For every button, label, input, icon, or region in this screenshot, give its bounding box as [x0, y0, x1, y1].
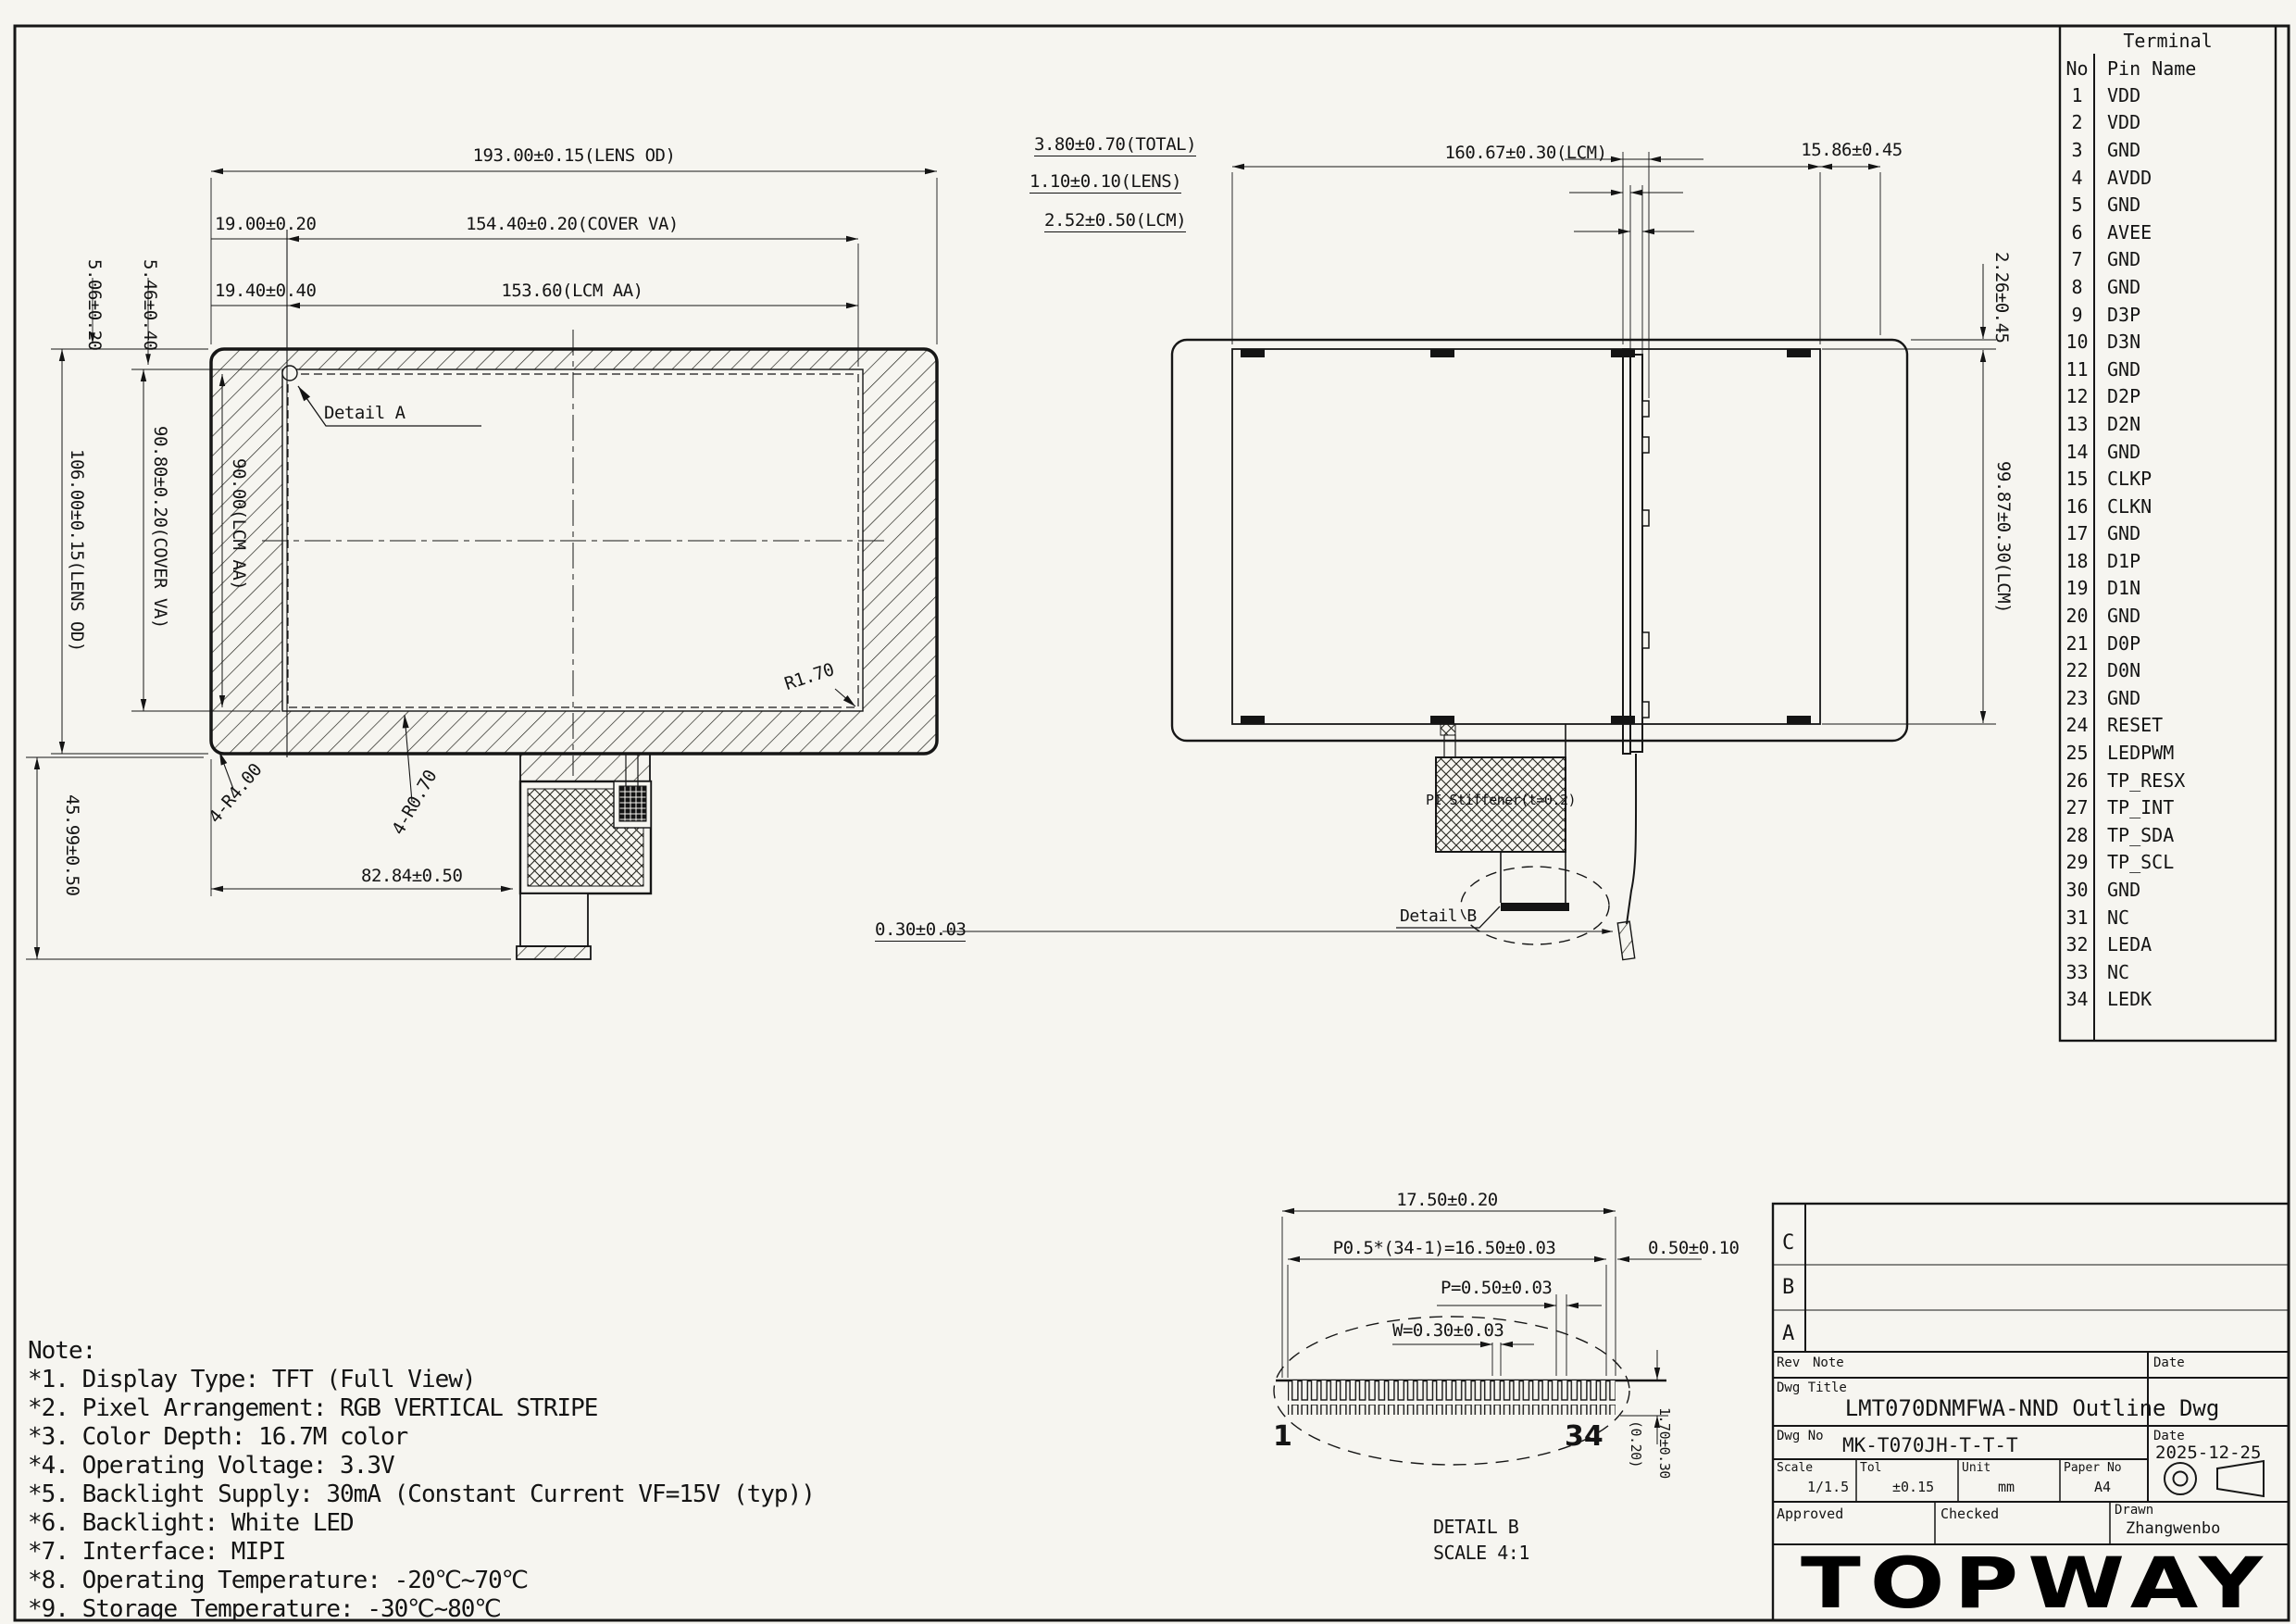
- rev-header: Rev: [1777, 1355, 1800, 1370]
- dim-tail-length: 45.99±0.50: [62, 794, 81, 895]
- dim-detail-pitch-total: P0.5*(34-1)=16.50±0.03: [1333, 1239, 1556, 1258]
- note-line: *3. Color Depth: 16.7M color: [28, 1423, 815, 1452]
- unit-label: Unit: [1962, 1461, 1990, 1475]
- tol-label: Tol: [1860, 1461, 1881, 1475]
- note-header: Note: [1813, 1355, 1844, 1370]
- pin-row: 3GND: [2060, 136, 2276, 164]
- pin-row: 23GND: [2060, 684, 2276, 712]
- note-line: *8. Operating Temperature: -20℃~70℃: [28, 1567, 815, 1595]
- pin-row: 12D2P: [2060, 383, 2276, 411]
- dim-offset-va: 19.00±0.20: [215, 215, 316, 234]
- pin-row: 18D1P: [2060, 547, 2276, 575]
- pin-row: 17GND: [2060, 520, 2276, 548]
- pin-row: 30GND: [2060, 876, 2276, 904]
- pin-table-col-name: Pin Name: [2094, 57, 2196, 81]
- pin-row: 29TP_SCL: [2060, 849, 2276, 877]
- note-line: *1. Display Type: TFT (Full View): [28, 1366, 815, 1394]
- rev-letter-a: A: [1782, 1322, 1794, 1345]
- pin-row: 14GND: [2060, 438, 2276, 466]
- detail-b-label: Detail B: [1400, 907, 1477, 926]
- topway-logo: TOPWAY: [1801, 1548, 2272, 1618]
- approved-label: Approved: [1777, 1505, 1843, 1522]
- pin-34-marker: 34: [1565, 1421, 1603, 1452]
- unit-value: mm: [1998, 1479, 2015, 1495]
- dim-cover-va-width: 154.40±0.20(COVER VA): [466, 215, 679, 234]
- notes-title: Note:: [28, 1337, 815, 1366]
- checked-label: Checked: [1940, 1505, 1999, 1522]
- scale-label: Scale: [1777, 1461, 1813, 1475]
- pin-row: 19D1N: [2060, 575, 2276, 603]
- dim-offset-aa: 19.40±0.40: [215, 281, 316, 301]
- dim-lens-od-width: 193.00±0.15(LENS OD): [473, 146, 676, 166]
- dim-lcm-aa-width: 153.60(LCM AA): [501, 281, 643, 301]
- detail-b-scale: SCALE 4:1: [1433, 1543, 1529, 1563]
- dwg-no-label: Dwg No: [1777, 1429, 1824, 1443]
- dim-detail-pin-width: W=0.30±0.03: [1392, 1321, 1504, 1341]
- detail-b-title: DETAIL B: [1433, 1517, 1518, 1537]
- note-line: *4. Operating Voltage: 3.3V: [28, 1452, 815, 1480]
- dim-detail-pin-length: 1.70±0.30: [1657, 1407, 1673, 1479]
- pin-table-header: No Pin Name: [2060, 57, 2276, 81]
- note-line: *9. Storage Temperature: -30℃~80℃: [28, 1595, 815, 1624]
- notes-section: Note: *1. Display Type: TFT (Full View)*…: [28, 1337, 815, 1624]
- paper-value: A4: [2094, 1479, 2111, 1495]
- rev-letter-b: B: [1782, 1276, 1794, 1299]
- date-header: Date: [2153, 1355, 2185, 1370]
- dim-fpc-thickness: 0.30±0.03: [875, 920, 966, 942]
- drawing-sheet: 193.00±0.15(LENS OD) 154.40±0.20(COVER V…: [0, 0, 2296, 1624]
- pin-table-title: Terminal: [2060, 26, 2276, 57]
- pin-row: 33NC: [2060, 958, 2276, 986]
- dwg-no-value: MK-T070JH-T-T-T: [1842, 1434, 2018, 1456]
- dim-total-thickness: 3.80±0.70(TOTAL): [1034, 135, 1196, 156]
- note-line: *7. Interface: MIPI: [28, 1538, 815, 1567]
- rev-letter-c: C: [1782, 1231, 1794, 1255]
- pin-row: 20GND: [2060, 602, 2276, 630]
- pin-row: 6AVEE: [2060, 219, 2276, 246]
- dim-fpc-width: 82.84±0.50: [361, 867, 462, 886]
- pin-row: 7GND: [2060, 246, 2276, 274]
- pin-row: 26TP_RESX: [2060, 767, 2276, 794]
- dwg-title-value: LMT070DNMFWA-NND Outline Dwg: [1845, 1395, 2220, 1421]
- pin-row: 4AVDD: [2060, 164, 2276, 192]
- note-line: *2. Pixel Arrangement: RGB VERTICAL STRI…: [28, 1394, 815, 1423]
- drawn-label: Drawn: [2115, 1503, 2153, 1518]
- pin-row: 25LEDPWM: [2060, 739, 2276, 767]
- pin-1-marker: 1: [1273, 1421, 1292, 1452]
- dim-lcm-width: 160.67±0.30(LCM): [1444, 144, 1606, 163]
- pin-row: 1VDD: [2060, 81, 2276, 109]
- pin-row: 34LEDK: [2060, 986, 2276, 1014]
- dim-detail-depth: (0.20): [1628, 1420, 1644, 1468]
- pin-row: 2VDD: [2060, 109, 2276, 137]
- pin-row: 10D3N: [2060, 328, 2276, 356]
- date-value: 2025-12-25: [2155, 1443, 2261, 1463]
- drawn-value: Zhangwenbo: [2126, 1519, 2220, 1538]
- dim-lcm-thickness: 2.52±0.50(LCM): [1044, 211, 1186, 232]
- dim-cover-va-height: 90.80±0.20(COVER VA): [150, 426, 169, 629]
- pin-table: Terminal No Pin Name 1VDD2VDD3GND4AVDD5G…: [2060, 26, 2276, 1041]
- pin-row: 8GND: [2060, 273, 2276, 301]
- dim-top-gap: 2.26±0.45: [1991, 252, 2011, 343]
- dim-margin-aa: 5.46±0.40: [140, 259, 159, 350]
- dim-detail-end-margin: 0.50±0.10: [1648, 1239, 1739, 1258]
- pin-row: 5GND: [2060, 191, 2276, 219]
- pin-row: 28TP_SDA: [2060, 821, 2276, 849]
- stiffener-label: PI Stiffener(t=0.2): [1426, 793, 1576, 808]
- pin-row: 31NC: [2060, 904, 2276, 931]
- dim-lens-thickness: 1.10±0.10(LENS): [1029, 172, 1181, 194]
- pin-row: 13D2N: [2060, 410, 2276, 438]
- dim-lcm-aa-height: 90.00(LCM AA): [229, 458, 248, 590]
- dim-fpc-offset: 15.86±0.45: [1801, 141, 1902, 160]
- pin-row: 24RESET: [2060, 712, 2276, 740]
- dim-lens-od-height: 106.00±0.15(LENS OD): [67, 449, 86, 652]
- tol-value: ±0.15: [1892, 1479, 1934, 1495]
- pin-row: 15CLKP: [2060, 465, 2276, 493]
- scale-value: 1/1.5: [1807, 1479, 1849, 1495]
- pin-row: 9D3P: [2060, 301, 2276, 329]
- notes-list: *1. Display Type: TFT (Full View)*2. Pix…: [28, 1366, 815, 1624]
- note-line: *5. Backlight Supply: 30mA (Constant Cur…: [28, 1480, 815, 1509]
- pin-table-col-no: No: [2060, 57, 2094, 81]
- dim-detail-total-width: 17.50±0.20: [1396, 1191, 1497, 1210]
- date-label: Date: [2153, 1429, 2185, 1443]
- pin-row: 11GND: [2060, 356, 2276, 383]
- dim-detail-pitch: P=0.50±0.03: [1441, 1279, 1552, 1298]
- detail-a-label: Detail A: [324, 404, 406, 423]
- pin-row: 32LEDA: [2060, 931, 2276, 958]
- pin-rows: 1VDD2VDD3GND4AVDD5GND6AVEE7GND8GND9D3P10…: [2060, 81, 2276, 1013]
- pin-row: 21D0P: [2060, 630, 2276, 657]
- dwg-title-label: Dwg Title: [1777, 1380, 1847, 1395]
- pin-row: 16CLKN: [2060, 493, 2276, 520]
- paper-label: Paper No: [2064, 1461, 2122, 1475]
- dim-lcm-height: 99.87±0.30(LCM): [1993, 461, 2013, 613]
- dim-margin-va: 5.06±0.20: [84, 259, 104, 350]
- pin-row: 22D0N: [2060, 656, 2276, 684]
- pin-row: 27TP_INT: [2060, 793, 2276, 821]
- note-line: *6. Backlight: White LED: [28, 1509, 815, 1538]
